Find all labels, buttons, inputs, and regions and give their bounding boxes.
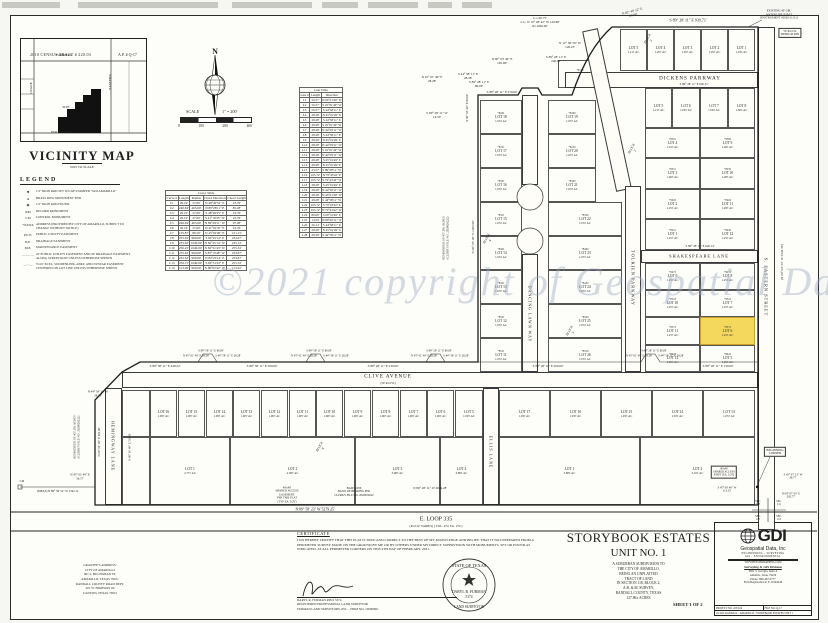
street-name: TOLKIEN PARKWAY: [631, 250, 636, 306]
lot-acreage: 1.05± AC: [709, 50, 721, 54]
table-cell: 960.00': [190, 266, 203, 271]
lot-acreage: 1.00± AC: [667, 175, 679, 179]
legend-symbol: D.E.: [20, 240, 36, 244]
plat-lot[interactable]: *8200LOT 191.05± AC: [548, 100, 596, 134]
table-cell: 26.19': [178, 201, 190, 206]
table-cell: N 48°40'52" E: [203, 201, 227, 206]
table-cell: 465.00': [190, 206, 203, 211]
lot-acreage: 1.06± AC: [680, 108, 692, 112]
plat-lot[interactable]: LOT 141.00± AC: [206, 390, 233, 437]
lot-acreage: 1.03± AC: [495, 153, 507, 157]
street-name: HEMINGWAY LANE: [111, 421, 116, 471]
table-cell: S 44°58'11" W: [321, 198, 343, 203]
table-cell: S 48°49'25" E: [203, 211, 227, 216]
street-name: CLIVE AVENUE: [364, 375, 412, 380]
lot-acreage: 1.03± AC: [495, 357, 507, 361]
scan-artifact: [368, 2, 418, 8]
street-name: SHAKESPEARE LANE: [669, 254, 729, 259]
plat-lot[interactable]: LOT 161.03± AC: [550, 390, 601, 437]
scan-artifact: [78, 2, 218, 8]
lot-acreage: 1.00± AC: [352, 414, 364, 418]
lot-acreage: 1.21± AC: [628, 50, 640, 54]
plat-label: N 00° 03' 49" E 1483.98': [472, 221, 476, 254]
table-cell: N 44°58'11" W: [321, 128, 343, 133]
table-cell: 105.72': [310, 178, 321, 183]
legend-item: *XXXXADDRESS (PROVIDED BY CITY OF AMARIL…: [20, 223, 138, 231]
lot-acreage: 1.00± AC: [269, 414, 281, 418]
plat-label: N 00° 03' 49" E 165.00': [492, 58, 513, 66]
lot-acreage: 1.00± AC: [241, 414, 253, 418]
plat-lot[interactable]: [122, 437, 150, 505]
plat-lot[interactable]: LOT 71.06± AC: [700, 88, 728, 128]
scale-ticks: 0100200400: [178, 124, 252, 128]
plat-label: S 89° 28' 11" W 14.50': [426, 112, 447, 120]
legend-text: MAINTENANCE EASEMENT: [36, 246, 77, 250]
lot-acreage: 1.03± AC: [495, 221, 507, 225]
table-cell: S 45°01'49" W: [321, 148, 343, 153]
lot-acreage: 4.38± AC: [287, 471, 299, 475]
table-cell: N 82°25'14" E: [203, 256, 227, 261]
plat-label: SITE: [62, 105, 69, 109]
legend-symbol: ◉: [20, 203, 36, 207]
plat-lot[interactable]: LOT 81.00± AC: [372, 390, 399, 437]
column-header: Chord Length: [227, 196, 247, 201]
plat-lot[interactable]: *8201LOT 181.03± AC: [480, 100, 522, 134]
lot-acreage: 1.25± AC: [722, 236, 734, 240]
plat-label: SEC. 118: [755, 500, 761, 506]
plat-label: N 45° 01' 49" E 28.28': [626, 354, 652, 357]
plat-lot[interactable]: LOT 51.21± AC: [645, 88, 672, 128]
plat-lot[interactable]: *8500LOT 251.03± AC: [548, 304, 622, 338]
plat-label: 40'x40' SHARED ACCESS ESM'T (EA. LOT): [711, 466, 737, 479]
plat-label: S 44° 58' 11" E 28.28': [443, 354, 468, 357]
table-cell: S 44°58'11" E: [321, 108, 343, 113]
plat-lot[interactable]: LOT 23.16± AC: [640, 437, 755, 505]
plat-label: S 89° 28' 11" E 500.00': [533, 365, 564, 369]
plat-label: (R.O.W. VARIES) ( VOL. 972, PG. 270 ): [410, 525, 463, 529]
table-cell: S 44°58'11" E: [321, 118, 343, 123]
scale-tick: 200: [223, 124, 228, 128]
table-cell: 235.62': [178, 236, 190, 241]
plat-lot[interactable]: LOT 121.00± AC: [261, 390, 288, 437]
plat-label: S 89° 28' 11" E 80.00': [641, 349, 666, 352]
column-header: Curve #: [166, 196, 179, 201]
plat-description: A SUBURBAN SUBDIVISION TOTHE CITY OF AMA…: [565, 562, 712, 601]
plat-lot[interactable]: LOT 161.00± AC: [150, 390, 177, 437]
seal-number: 5374: [465, 595, 472, 599]
plat-subtitle: UNIT NO. 1: [565, 547, 712, 559]
table-cell: 135.87': [178, 231, 190, 236]
text-line: Firm Registration #: F-10194246: [715, 581, 811, 585]
plat-label: SEC. 111: [776, 500, 782, 506]
surveyor-firm-block: GDI Geospatial Data, Inc ENGINEERING – S…: [714, 522, 812, 616]
lot-acreage: 1.05± AC: [566, 119, 578, 123]
lot-acreage: 1.00± AC: [435, 414, 447, 418]
lot-acreage: 1.00± AC: [297, 414, 309, 418]
legend-symbol: M.E.: [20, 246, 36, 250]
grantee-address-block: GRANTEE'S ADDRESS:CITY OF AMARILLO601 S.…: [35, 563, 165, 595]
surveyor-signature-block: DARYL R. FURMAN RPLS 5374REGISTERED PROF…: [297, 597, 457, 611]
plat-lot[interactable]: LOT 71.00± AC: [400, 390, 427, 437]
plat-lot[interactable]: *8250LOT 201.03± AC: [548, 134, 596, 168]
lot-acreage: 1.03± AC: [519, 414, 531, 418]
lot-acreage: 1.03± AC: [566, 187, 578, 191]
plat-label: N 89° 28' 11" W 2649.28': [413, 487, 447, 491]
legend-text: PUBLIC UTILITY EASEMENT: [36, 233, 78, 237]
plat-lot[interactable]: *8551LOT 111.03± AC: [480, 338, 522, 372]
table-cell: S 79°43'42" W: [321, 178, 343, 183]
plat-lot[interactable]: LOT 61.00± AC: [427, 390, 454, 437]
lot-acreage: 1.03± AC: [495, 289, 507, 293]
lot-acreage: 1.01± AC: [667, 145, 679, 149]
legend-item: ■1/2" IRON ROD SET W/CAP STAMPED "GDI AM…: [20, 190, 138, 194]
firm-footer: PROJECT NO. 2253-04 FILE NO. Q-17 ACAD: …: [715, 605, 811, 615]
plat-lot[interactable]: *8472LOT 81.25± AC: [700, 263, 755, 290]
lot-acreage: 1.03± AC: [495, 119, 507, 123]
table-cell: N 86°05'42" W: [203, 266, 227, 271]
plat-label: FARMERS: [56, 53, 72, 57]
plat-lot[interactable]: *8501LOT 121.03± AC: [480, 304, 522, 338]
plat-label: N 00° 07' 03" E 292.77': [782, 493, 800, 500]
street-name: S. EASTERN STREET: [764, 258, 769, 317]
lot-acreage: 1.03± AC: [579, 289, 591, 293]
plat-label: CM: [20, 480, 25, 484]
scale-bar: [180, 117, 252, 123]
plat-label: N 00° 03' 49" E 80.00': [466, 94, 470, 122]
lot-acreage: 1.03± AC: [495, 187, 507, 191]
plat-lot[interactable]: LOT 111.00± AC: [289, 390, 316, 437]
seal-bottom-text: LAND SURVEYOR: [454, 605, 485, 609]
legend-symbol: *XXXX: [20, 223, 36, 231]
table-cell: 113.02': [227, 266, 247, 271]
firm-tagline-2: GIS – ENVIRONMENTAL: [715, 555, 811, 558]
lot-acreage: 1.03± AC: [579, 221, 591, 225]
lot-acreage: 1.25± AC: [667, 305, 679, 309]
column-header: Length: [178, 196, 190, 201]
legend-text: 5'x10' XCEL, SUDDENLINK, AT&T, AND NUSTA…: [36, 263, 138, 271]
legend-item: — — —25' PUBLIC UTILITY EASEMENT AND 20'…: [20, 253, 138, 261]
plat-label: S 89° 28' 11" E 230.00': [368, 365, 399, 369]
plat-label: S 89° 28' 11" E 270.00': [487, 91, 518, 95]
plat-lot[interactable]: LOT 51.21± AC: [620, 29, 647, 71]
plat-lot[interactable]: LOT 51.00± AC: [455, 390, 483, 437]
table-cell: N 00°31'49" W: [321, 98, 343, 103]
lot-acreage: 1.25± AC: [667, 236, 679, 240]
table-cell: S 82°25'14" E: [203, 236, 227, 241]
table-cell: 105.72': [310, 173, 321, 178]
plat-lot[interactable]: LOT 43.88± AC: [440, 437, 483, 505]
plat-lot[interactable]: *8351LOT 31.00± AC: [645, 158, 700, 189]
plat-lot[interactable]: *8301LOT 41.01± AC: [645, 128, 700, 158]
legend-item: CMCONTROL MONUMENT: [20, 216, 138, 220]
table-cell: 235.62': [178, 256, 190, 261]
table-cell: N 45°01'49" E: [321, 113, 343, 118]
text-line: 127.86± ACRES: [565, 596, 712, 601]
plat-lot[interactable]: *8402LOT 111.28± AC: [700, 189, 755, 219]
table-cell: N 45°01'49" E: [321, 138, 343, 143]
plat-label: S 89° 58' 11" E 449.22': [150, 365, 181, 369]
plat-lot[interactable]: LOT 13.88± AC: [499, 437, 640, 505]
plat-lot[interactable]: LOT 21.05± AC: [701, 29, 728, 71]
table-cell: S 45°01'49" W: [321, 123, 343, 128]
plat-label: BEGINNING CORNER: [764, 447, 786, 457]
plat-lot[interactable]: LOT 141.03± AC: [652, 390, 703, 437]
lot-acreage: 3.16± AC: [692, 471, 704, 475]
lot-acreage: 1.06± AC: [708, 108, 720, 112]
curve-table: Curve TableCurve #LengthRadiusChord Dire…: [165, 190, 247, 271]
plat-label: S 89° 28' 11" E 240.00': [546, 56, 566, 64]
lot-acreage: 3.88± AC: [564, 471, 576, 475]
plat-lot[interactable]: [122, 390, 150, 437]
plat-title: STORYBOOK ESTATES: [565, 530, 712, 546]
table-cell: 235.62': [178, 251, 190, 256]
legend-item: P.U.E.PUBLIC UTILITY EASEMENT: [20, 233, 138, 237]
plat-lot[interactable]: *8300LOT 211.03± AC: [548, 168, 596, 202]
plat-lot[interactable]: LOT 11.03± AC: [728, 29, 755, 71]
plat-label: N 45° 01' 49" E 28.28': [422, 76, 443, 84]
plat-lot[interactable]: LOT 131.03± AC: [703, 390, 755, 437]
table-cell: 26.19': [178, 211, 190, 216]
plat-label: N 45° 01' 49" E 56.57': [70, 473, 90, 480]
plat-lot[interactable]: *8573LOT 111.25± AC: [645, 317, 700, 345]
plat-lot-highlighted[interactable]: *8572LOT 61.25± AC: [700, 317, 755, 345]
plat-label: N 89° 58' 23" W 5279.25': [295, 508, 334, 513]
table-cell: 28.28': [310, 233, 321, 238]
table-cell: 465.00': [190, 221, 203, 226]
lot-acreage: 1.00± AC: [380, 414, 392, 418]
table-cell: N 44°58'11" W: [321, 153, 343, 158]
plat-label: S 89° 28' 11" E 620.14': [686, 245, 715, 249]
plat-lot[interactable]: *8400LOT 231.03± AC: [548, 236, 622, 270]
plat-label: N 45° 01' 49" E 28.28': [291, 354, 317, 357]
table-cell: 26.19': [178, 216, 190, 221]
table-cell: N 41°01'45" E: [203, 226, 227, 231]
lot-acreage: 3.98± AC: [392, 471, 404, 475]
plat-lot[interactable]: *8450LOT 241.03± AC: [548, 270, 622, 304]
vicinity-map: [20, 38, 147, 142]
plat-lot[interactable]: *8523LOT 101.25± AC: [645, 290, 700, 317]
plat-label: S 89° 28' 11" E 80.00': [426, 349, 451, 352]
plat-label: S 45° 07' 13" W 36.77': [784, 474, 803, 481]
lot-acreage: 1.25± AC: [722, 333, 734, 337]
vicinity-map-title: VICINITY MAP: [29, 148, 135, 164]
plat-label: S 89° 28' 11" E 640.31': [680, 83, 709, 87]
table-cell: N 89°28'11" E: [203, 206, 227, 211]
lot-acreage: 1.25± AC: [667, 360, 679, 364]
plat-label: N 44° 58' 11" W 28.28': [88, 390, 108, 397]
table-cell: S 44°58'11" E: [321, 223, 343, 228]
lot-acreage: 1.03± AC: [672, 414, 684, 418]
table-cell: S 44°58'11" E: [321, 133, 343, 138]
plat-label: S 89° 58' 11" E 80.00': [306, 349, 331, 352]
plat-label: EASTERN: [108, 74, 112, 89]
text-line: FURMAN LAND SURVEYORS, INC. - FIRM NO. 1…: [297, 607, 457, 611]
plat-label: S 44° 58' 11" E 28.28': [658, 354, 683, 357]
seal-name: DARYL R. FURMAN: [452, 590, 487, 594]
table-cell: 960.00': [190, 256, 203, 261]
compass-rose-icon: [195, 55, 235, 115]
lot-acreage: 1.03± AC: [579, 255, 591, 259]
street-name: DANCING LAWN WAY: [528, 286, 533, 343]
table-cell: N 44°58'11" W: [321, 143, 343, 148]
plat-label: HOLLYWOOD: [51, 130, 73, 134]
table-cell: N 79°43'42" E: [321, 173, 343, 178]
lot-acreage: 1.25± AC: [667, 278, 679, 282]
lot-acreage: 1.06± AC: [736, 108, 748, 112]
title-block: STORYBOOK ESTATES UNIT NO. 1 A SUBURBAN …: [565, 530, 712, 601]
plat-label: S 89° 58' 11" E 500.00': [247, 365, 278, 369]
scan-artifact: [232, 2, 312, 8]
table-cell: 1040.00': [190, 241, 203, 246]
plat-lot[interactable]: *8301LOT 161.03± AC: [480, 168, 522, 202]
plat-lot[interactable]: LOT 151.03± AC: [601, 390, 652, 437]
lot-acreage: 1.25± AC: [722, 305, 734, 309]
lot-acreage: 1.25± AC: [667, 333, 679, 337]
seal-top-text: STATE OF TEXAS: [452, 563, 487, 568]
plat-lot[interactable]: *8251LOT 171.03± AC: [480, 134, 522, 168]
plat-lot[interactable]: *8451LOT 131.03± AC: [480, 270, 522, 304]
column-header: Length: [310, 93, 321, 98]
vicinity-map-drawing: [21, 39, 146, 141]
lot-acreage: 1.00± AC: [214, 414, 226, 418]
plat-lot[interactable]: LOT 151.00± AC: [178, 390, 205, 437]
table-cell: S 79°43'42" E: [321, 203, 343, 208]
column-header: Line #: [300, 93, 310, 98]
surveyor-signature: [295, 572, 395, 598]
legend-symbol: P.U.E.: [20, 233, 36, 237]
lot-acreage: 1.03± AC: [570, 414, 582, 418]
lot-acreage: 1.03± AC: [495, 255, 507, 259]
legend-item: M.E.MAINTENANCE EASEMENT: [20, 246, 138, 250]
table-cell: S 45°01'49" E: [321, 158, 343, 163]
scan-artifact: [462, 2, 492, 8]
plat-lot[interactable]: *8350LOT 221.03± AC: [548, 202, 622, 236]
lot-acreage: 1.28± AC: [722, 175, 734, 179]
legend-text: RECORD MONUMENT: [36, 210, 69, 214]
table-cell: N 44°58'11" W: [321, 188, 343, 193]
plat-lot[interactable]: *8403LOT 21.25± AC: [645, 189, 700, 219]
legend-item: RMRECORD MONUMENT: [20, 210, 138, 214]
plat-label: 50' R.O.W. DEDICATION: [778, 28, 801, 38]
plat-label: S 44° 58' 11" E 28.28': [323, 354, 348, 357]
lot-acreage: 1.21± AC: [653, 108, 665, 112]
plat-lot[interactable]: LOT 12.77± AC: [150, 437, 230, 505]
plat-label: OSAGE: [29, 82, 33, 93]
certificate-title: CERTIFICATE: [297, 531, 535, 536]
plat-lot[interactable]: *8473LOT 91.25± AC: [645, 263, 700, 290]
plat-lot[interactable]: LOT 171.03± AC: [499, 390, 550, 437]
table-row: L2828.28'S 44°58'11" W: [300, 233, 343, 238]
table-cell: 26.19': [178, 226, 190, 231]
plat-lot[interactable]: *8300LOT 91.26± AC: [700, 128, 755, 158]
table-cell: S 41°10'35" W: [203, 216, 227, 221]
plat-label: S 89° 28' 11" E 939.71': [669, 19, 706, 24]
lot-acreage: 1.03± AC: [495, 323, 507, 327]
lot-acreage: 1.00± AC: [186, 414, 198, 418]
legend-symbol: —··—: [20, 263, 36, 271]
plat-lot[interactable]: *8350LOT 101.28± AC: [700, 158, 755, 189]
table-cell: N 45°01'49" E: [321, 163, 343, 168]
plat-lot[interactable]: *8522LOT 71.25± AC: [700, 290, 755, 317]
street-band-clive-avenue: [122, 372, 758, 388]
table-cell: 240.84': [178, 206, 190, 211]
table-cell: N 45°02'49" E: [203, 231, 227, 236]
legend-item: —··—5'x10' XCEL, SUDDENLINK, AT&T, AND N…: [20, 263, 138, 271]
scale-ratio: 1" = 200': [222, 109, 237, 114]
lot-acreage: 1.00± AC: [324, 414, 336, 418]
table-row: C14113.09'960.00'N 86°05'42" W113.02': [166, 266, 247, 271]
plat-lot[interactable]: LOT 31.05± AC: [674, 29, 701, 71]
plat-label: SEC. 117: [755, 515, 761, 521]
lot-acreage: 1.26± AC: [722, 145, 734, 149]
plat-label: SEC. 112: [776, 515, 782, 521]
street-name: ELLIS LANE: [489, 436, 494, 469]
lot-acreage: 1.03± AC: [723, 414, 735, 418]
file-number: FILE NO. Q-17: [764, 606, 812, 610]
legend-text: 25' PUBLIC UTILITY EASEMENT AND 20' DRAI…: [36, 253, 138, 261]
legend-title: LEGEND: [20, 177, 120, 185]
lot-acreage: 1.00± AC: [408, 414, 420, 418]
table-cell: 113.09': [178, 266, 190, 271]
plat-lot[interactable]: LOT 81.06± AC: [728, 88, 755, 128]
project-number: PROJECT NO. 2253-04: [715, 606, 764, 610]
plat-lot[interactable]: *8351LOT 151.03± AC: [480, 202, 522, 236]
plat-lot[interactable]: LOT 131.00± AC: [233, 390, 260, 437]
lot-acreage: 1.03± AC: [579, 357, 591, 361]
lot-acreage: 2.77± AC: [184, 471, 196, 475]
lot-acreage: 1.03± AC: [621, 414, 633, 418]
plat-label: (MEAS) N 89° 58' 14" W 1292.11': [37, 490, 79, 494]
lot-acreage: 1.25± AC: [722, 278, 734, 282]
scale-tick: 100: [198, 124, 203, 128]
plat-lot[interactable]: LOT 91.00± AC: [344, 390, 371, 437]
table-cell: C14: [166, 266, 179, 271]
legend-symbol: — — —: [20, 253, 36, 261]
table-cell: 246.94': [178, 221, 190, 226]
table-cell: S 82°51'43" E: [203, 261, 227, 266]
plat-lot[interactable]: LOT 101.00± AC: [316, 390, 343, 437]
plat-lot[interactable]: LOT 61.06± AC: [672, 88, 700, 128]
legend-text: 1/2" IRON ROD SET W/CAP STAMPED "GDI AMA…: [36, 190, 117, 194]
plat-label: S 44° 58' 11" E 28.28': [215, 354, 240, 357]
legend-item: D.E.DRAINAGE EASEMENT: [20, 240, 138, 244]
legend-item: ◉1/2" IRON ROD FOUND: [20, 203, 138, 207]
legend-symbol: ■: [20, 190, 36, 194]
legend-symbol: ●: [20, 197, 36, 201]
plat-label: (50' R.O.W.): [380, 382, 395, 386]
plat-label: S 89° 28' 11" E 150.00': [703, 365, 734, 369]
scan-artifact: [322, 2, 358, 8]
legend-text: ADDRESS (PROVIDED BY CITY OF AMARILLO, S…: [36, 223, 138, 231]
text-line: CANYON, TEXAS 79015: [35, 591, 165, 596]
vicinity-map-subtitle: NOT TO SCALE: [62, 163, 102, 169]
lot-acreage: 1.05± AC: [682, 50, 694, 54]
lot-acreage: 1.00± AC: [158, 414, 170, 418]
firm-website: WWW.BEYONDMAPPING.COM: [728, 559, 798, 564]
legend-item: ●BRASS ROW MONUMENT FND: [20, 197, 138, 201]
scanned-plat-sheet: 2010 CENSUS TRACT # 220.03 A.P. # Q-17 F…: [0, 0, 828, 623]
table-cell: 1040.00': [190, 246, 203, 251]
plat-label: E. LOOP 335: [420, 516, 453, 523]
table-cell: 960.00': [190, 251, 203, 256]
scale-label: SCALE: [186, 109, 199, 114]
legend-symbol: RM: [20, 210, 36, 214]
legend-symbol: CM: [20, 216, 36, 220]
legend-list: ■1/2" IRON ROD SET W/CAP STAMPED "GDI AM…: [20, 190, 138, 274]
lot-acreage: 1.05± AC: [655, 50, 667, 54]
plat-label: N 12° 38' 56" W 120.25': [559, 42, 581, 50]
table-cell: N 82°51'43" W: [203, 246, 227, 251]
